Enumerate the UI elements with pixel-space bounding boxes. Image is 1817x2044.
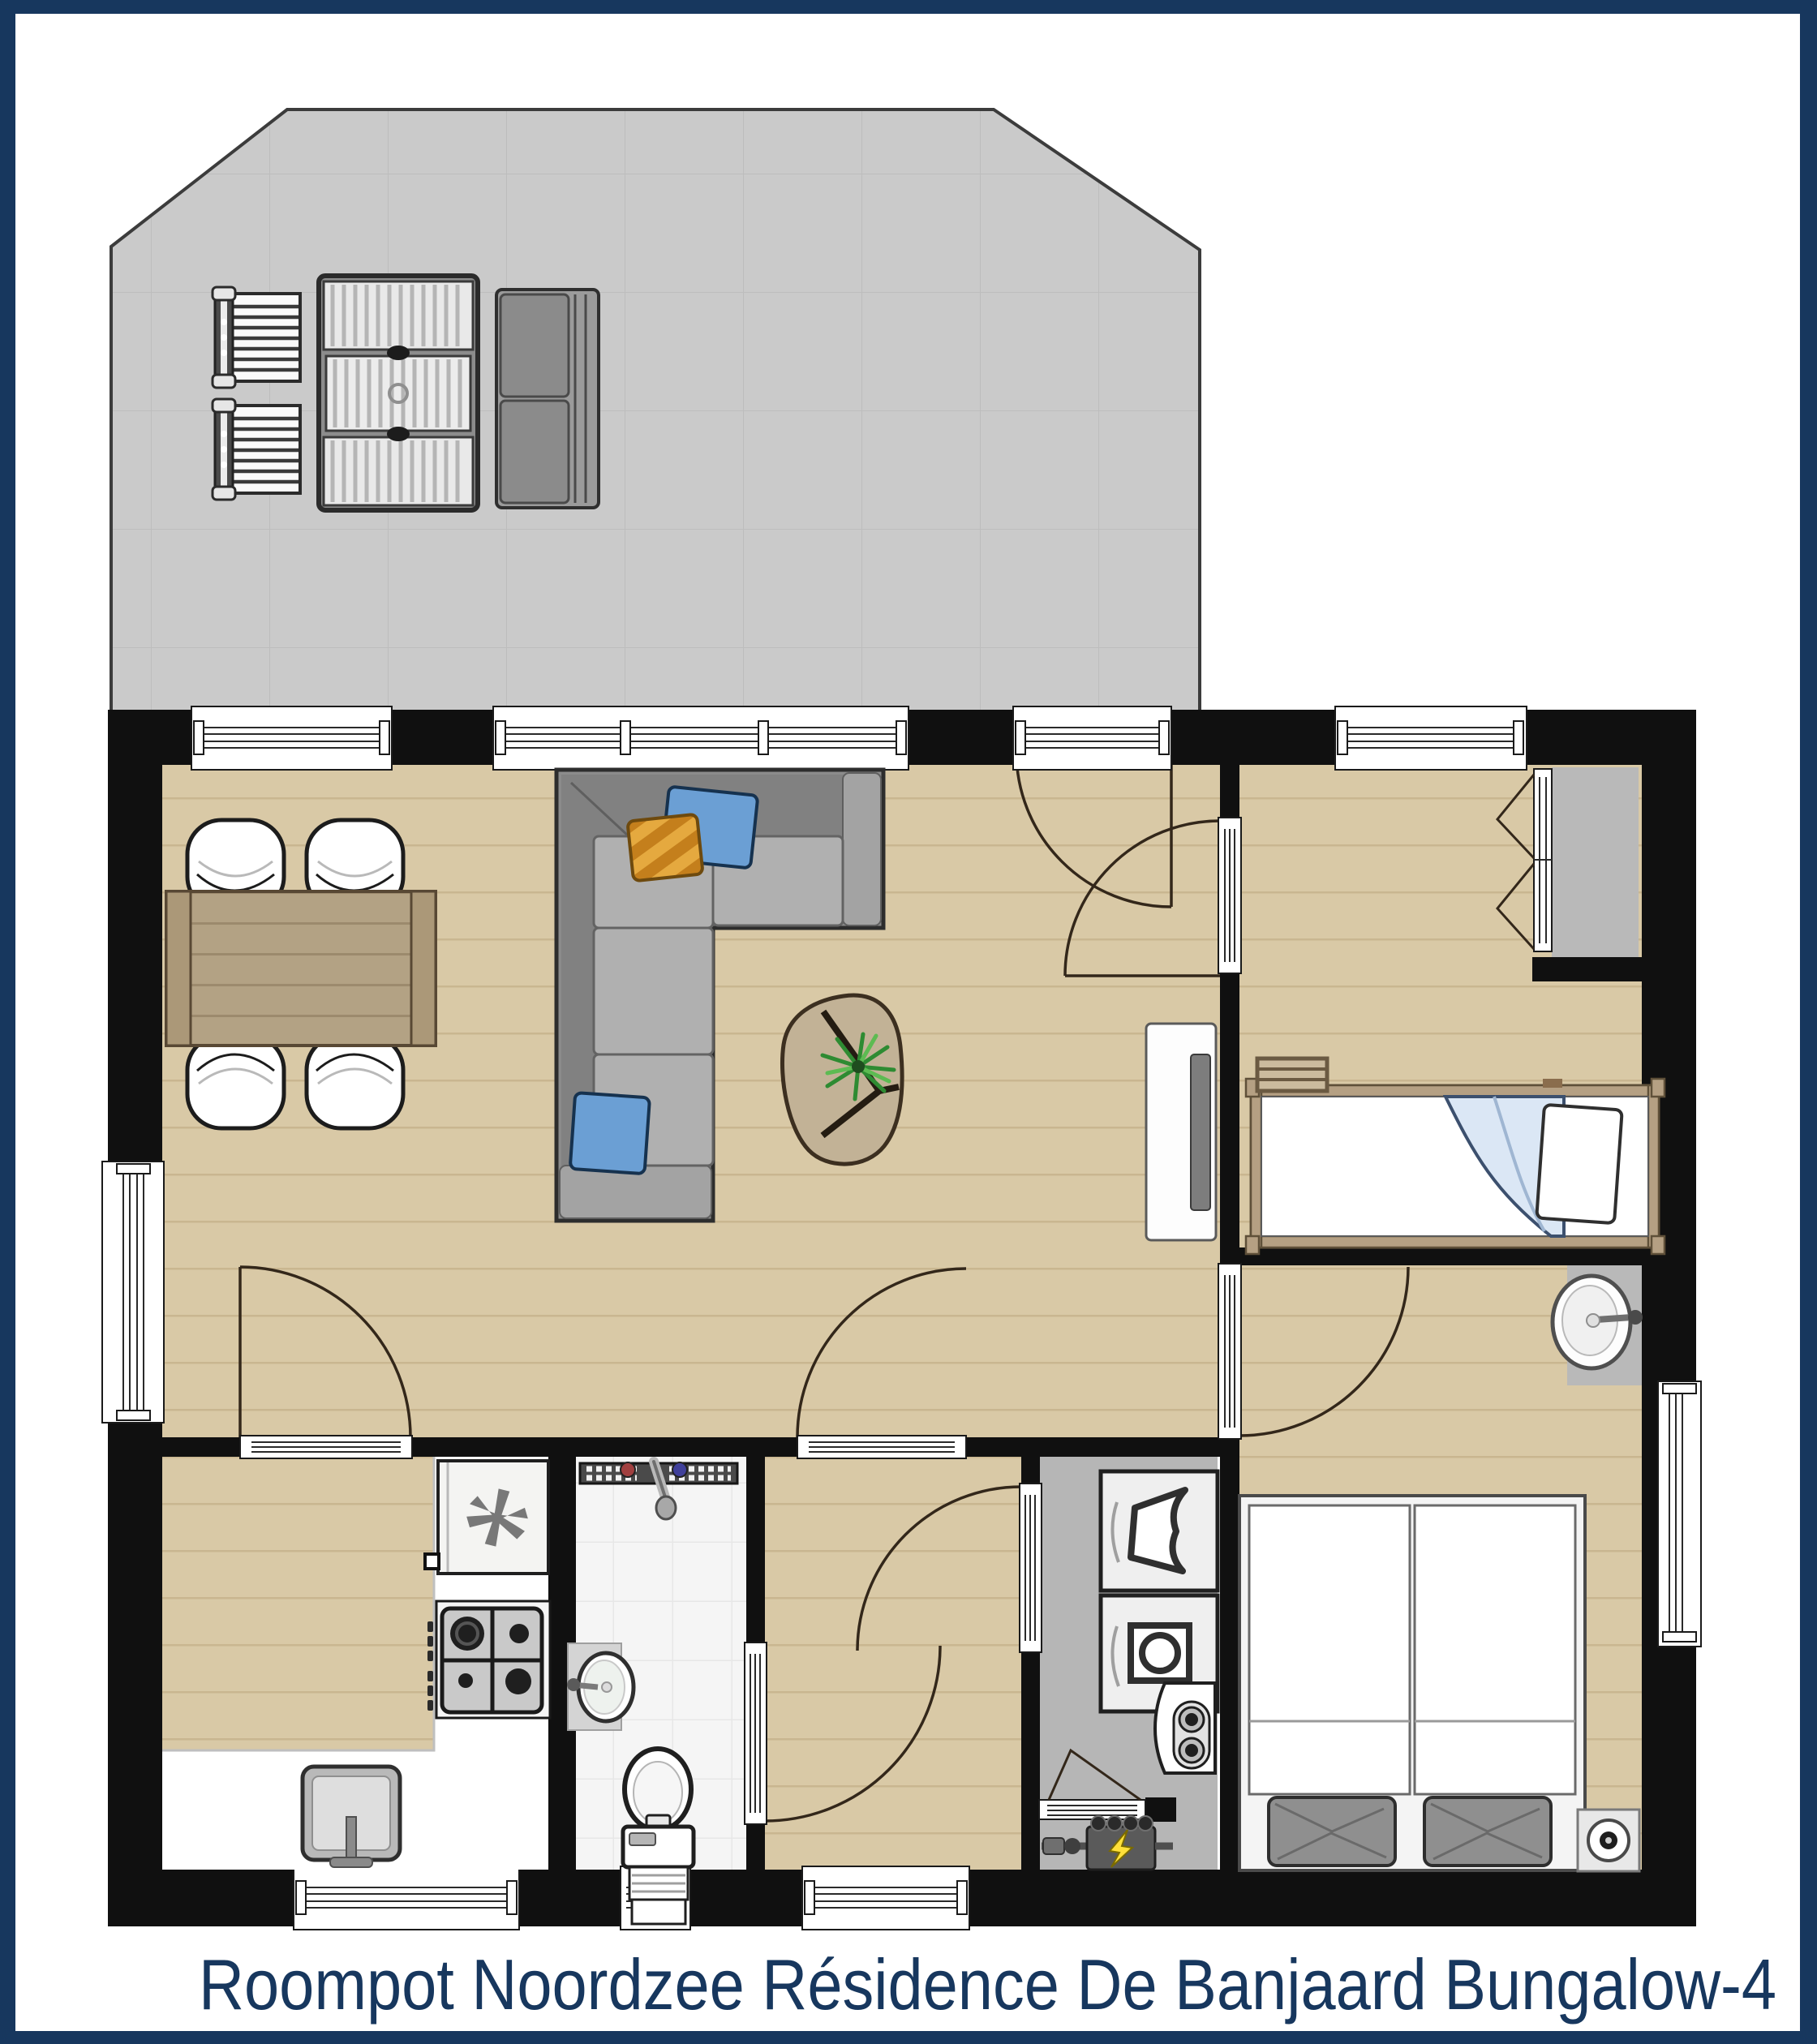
svg-text:Roompot Noordzee Résidence De: Roompot Noordzee Résidence De Banjaard B… (199, 1944, 1776, 2025)
